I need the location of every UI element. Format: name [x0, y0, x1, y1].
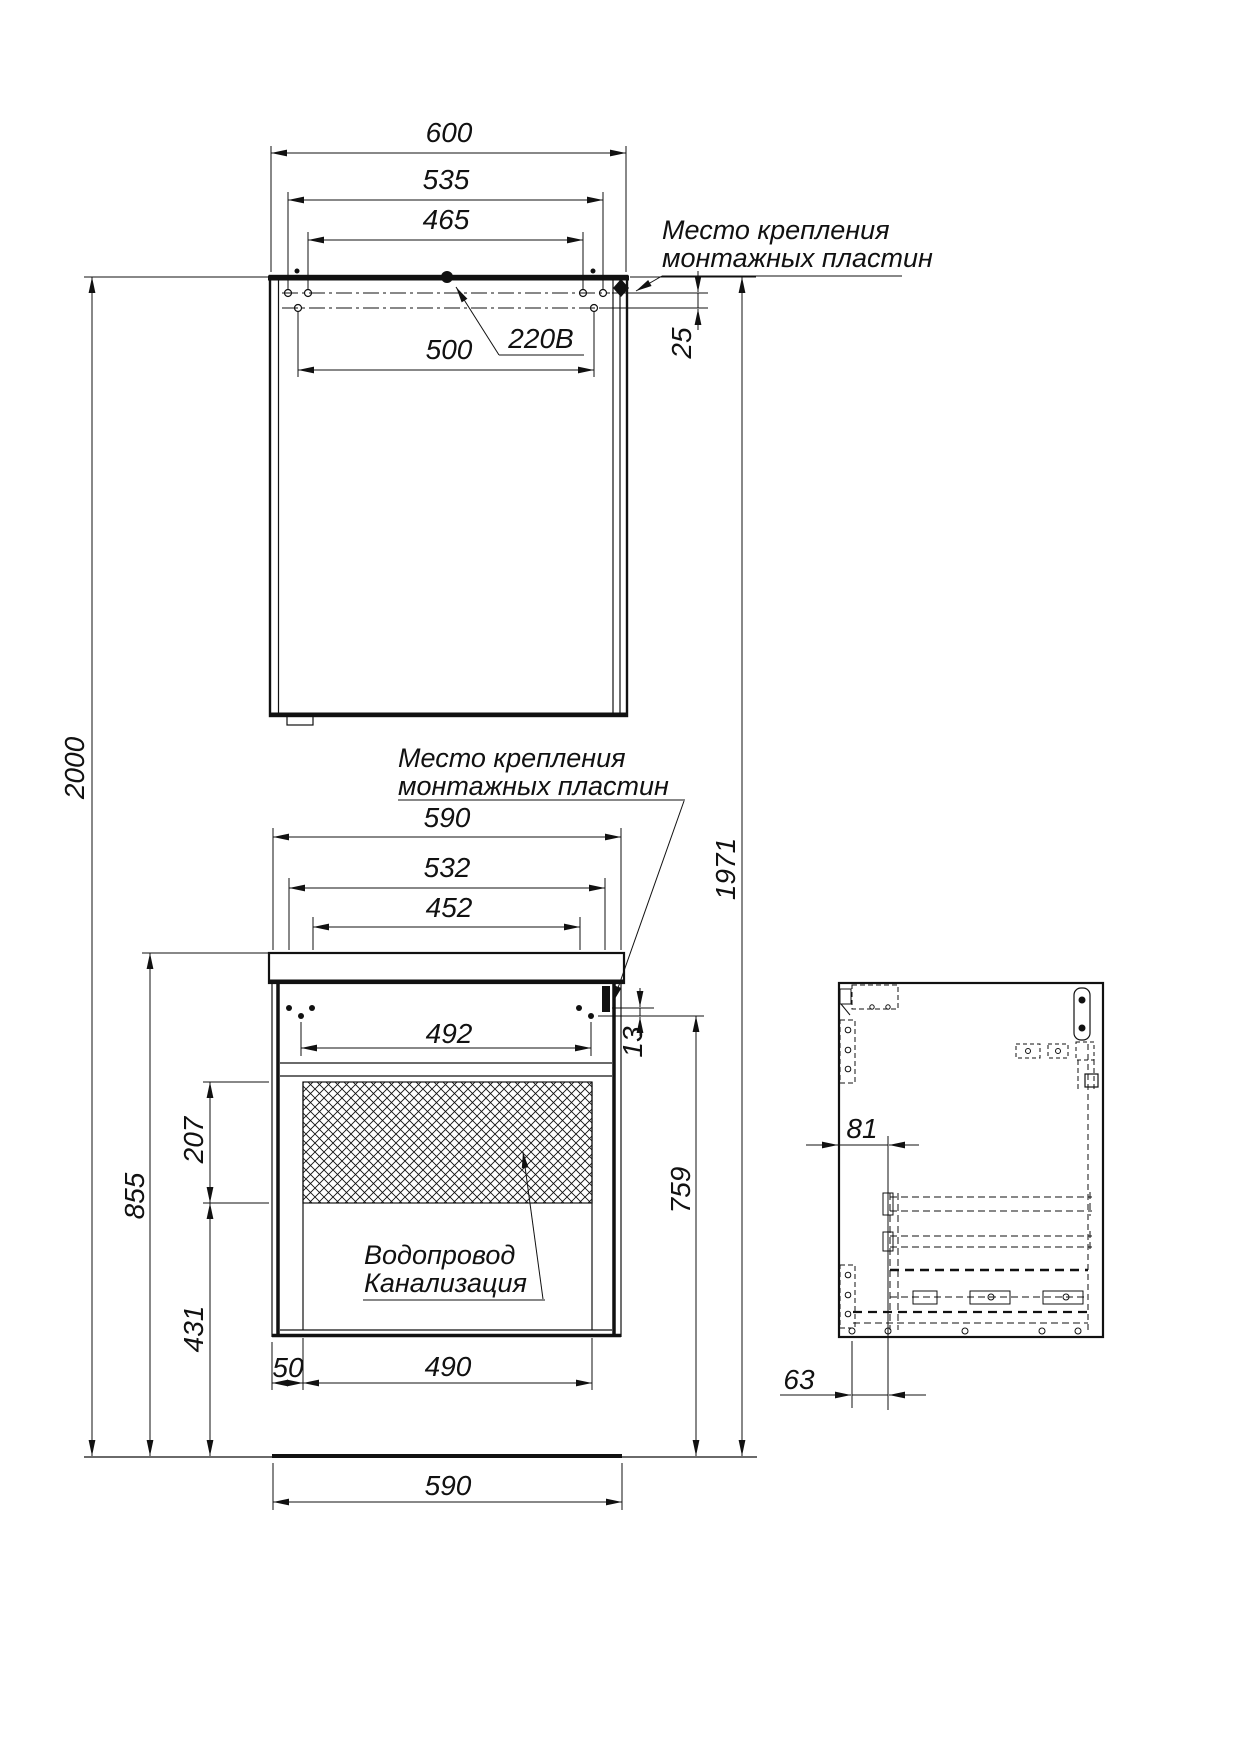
dim-mirror-holes-lower: 500 — [426, 334, 473, 366]
power-outlet-point — [441, 271, 453, 283]
note-mounting-mid-line2: монтажных пластин — [398, 772, 669, 800]
side-mounting-plate — [1074, 988, 1090, 1040]
dim-mirror-width: 600 — [426, 117, 473, 149]
dim-service-zone-height: 207 — [178, 1117, 210, 1164]
door-bottom-tab — [287, 716, 313, 725]
dim-service-offset: 50 — [272, 1352, 303, 1384]
side-view — [839, 983, 1103, 1337]
note-plumbing-line2: Канализация — [364, 1269, 527, 1297]
dim-mirror-plates-inner: 465 — [423, 204, 470, 236]
dim-vanity-rows-gap: 13 — [617, 1026, 649, 1057]
dim-vanity-plates-outer: 532 — [424, 852, 471, 884]
note-plumbing-line1: Водопровод — [364, 1241, 515, 1269]
countertop — [269, 953, 624, 983]
note-mounting-mid-line1: Место крепления — [398, 744, 626, 772]
dim-mirror-plates-outer: 535 — [423, 164, 470, 196]
dim-footprint: 590 — [425, 1470, 472, 1502]
dim-mirror-rows-gap: 25 — [666, 327, 698, 358]
dim-vanity-plates-inner: 452 — [426, 892, 473, 924]
dim-vanity-holes-lower: 492 — [426, 1018, 473, 1050]
note-mounting-top-line2: монтажных пластин — [662, 244, 933, 272]
dim-side-front-offset: 81 — [846, 1113, 877, 1145]
dim-service-width: 490 — [425, 1351, 472, 1383]
vanity-mounting-plate — [602, 986, 610, 1012]
dim-service-bottom-height: 431 — [178, 1306, 210, 1353]
vanity-mounting-holes — [286, 1005, 594, 1019]
dim-right-drop: 759 — [665, 1167, 697, 1214]
dim-vanity-width: 590 — [424, 802, 471, 834]
dim-total-height: 2000 — [59, 737, 91, 799]
dim-vanity-top-height: 855 — [119, 1173, 151, 1220]
dim-side-back-offset: 63 — [783, 1364, 814, 1396]
service-zone-hatch — [303, 1082, 592, 1203]
note-mounting-top-line1: Место крепления — [662, 216, 890, 244]
power-label: 220В — [508, 323, 573, 355]
drawer-slides — [853, 1192, 1092, 1330]
drawing-sheet: 600 535 465 500 220В 25 Место крепления … — [0, 0, 1240, 1754]
drawing-linework — [0, 0, 1240, 1754]
dim-mirror-top-height: 1971 — [710, 838, 742, 900]
